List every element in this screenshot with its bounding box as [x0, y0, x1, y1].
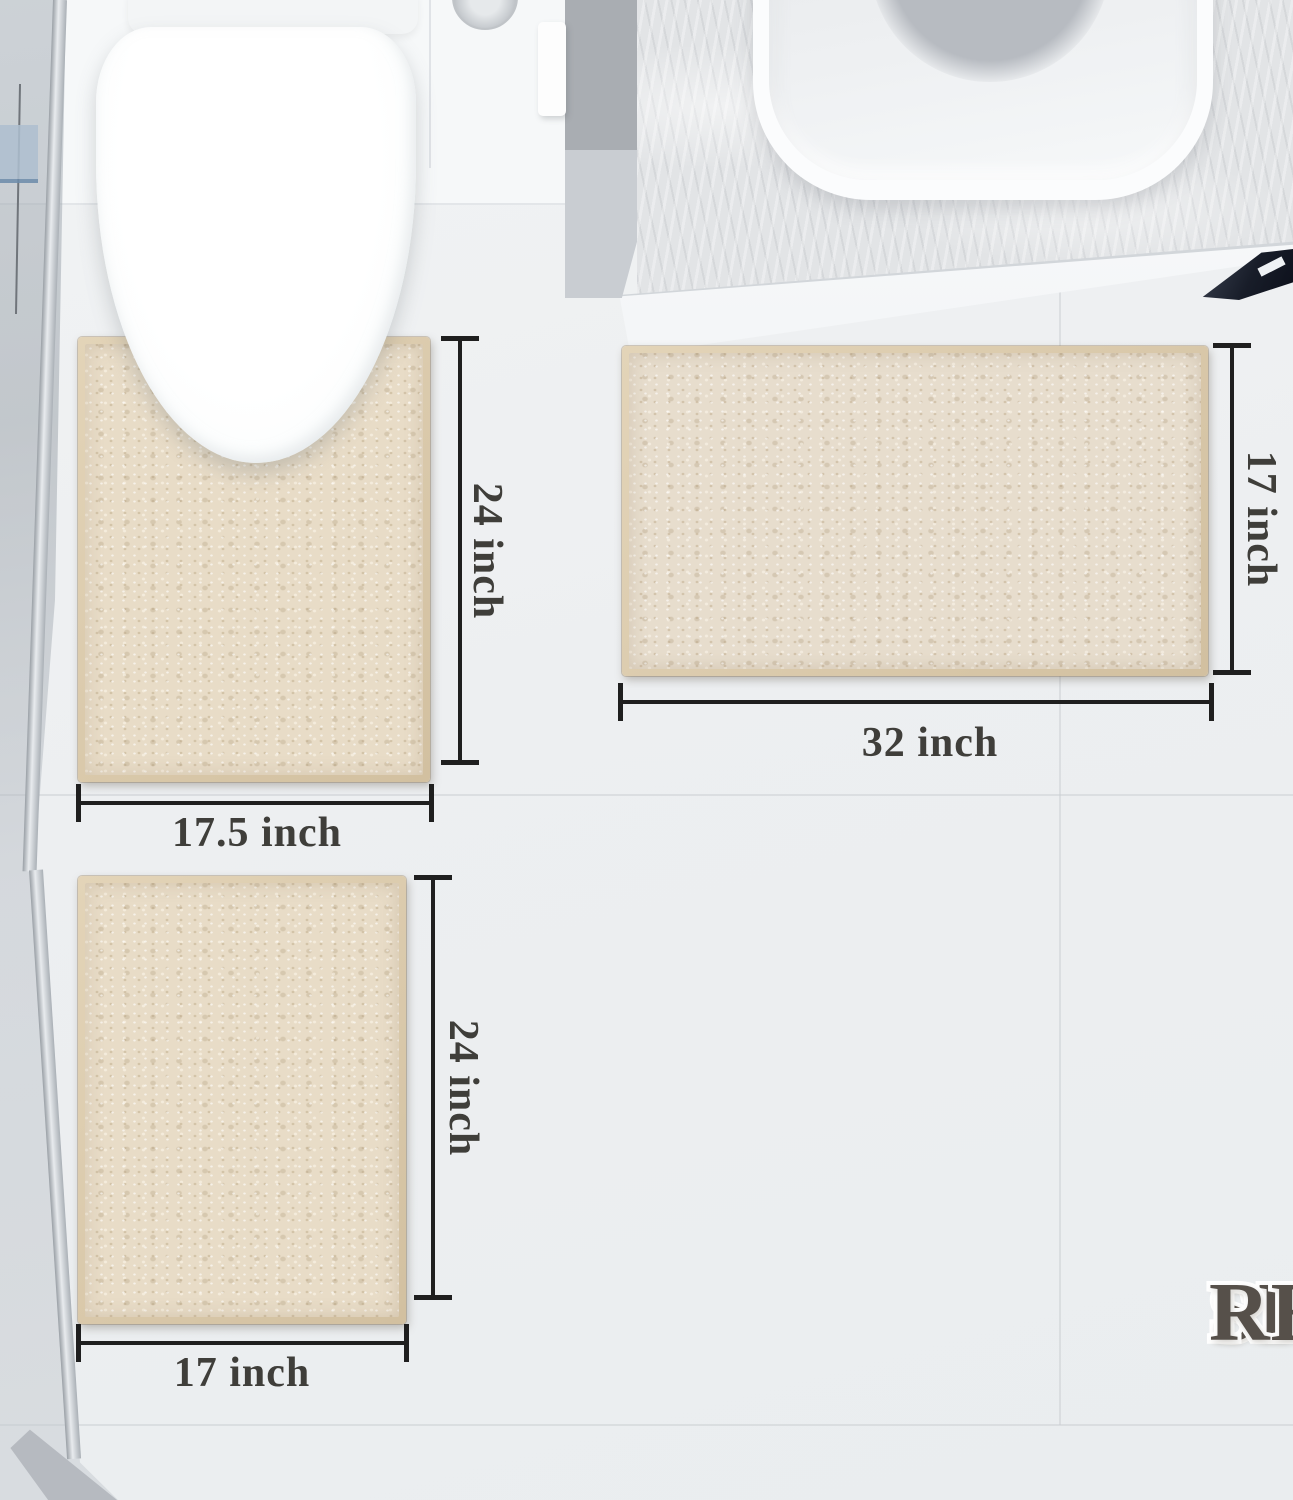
- tile-grout-line: [429, 0, 431, 168]
- dimension-label-contour-height: 24 inch: [464, 391, 508, 711]
- mat-fabric: [629, 353, 1201, 669]
- dimension-line-small-height: [431, 877, 435, 1298]
- dimension-label-small-width: 17 inch: [92, 1352, 392, 1396]
- dimension-label-contour-width: 17.5 inch: [97, 812, 417, 856]
- hand-towel: [538, 22, 566, 116]
- sink-basin: [753, 0, 1213, 200]
- tile-grout-line: [0, 1424, 1293, 1426]
- dimension-line-runner-width: [620, 700, 1212, 704]
- dimension-label-runner-width: 32 inch: [780, 722, 1080, 766]
- tile-grout-line: [0, 794, 1293, 796]
- runner-mat: [622, 346, 1208, 676]
- wall-cabinet: [565, 0, 637, 150]
- dimension-line-runner-height: [1230, 345, 1234, 673]
- glass-reflection: [0, 125, 38, 183]
- mat-fabric: [85, 883, 399, 1317]
- dimension-line-contour-width: [78, 801, 432, 805]
- wall-cabinet-base: [565, 150, 637, 298]
- product-size-reference-image: 24 inch 17.5 inch 17 inch 32 inch 24 inc…: [0, 0, 1293, 1500]
- shower-glass-panel: [0, 0, 130, 1500]
- dimension-label-small-height: 24 inch: [440, 928, 484, 1248]
- title-line-2: REFERENCE: [1209, 1262, 1293, 1364]
- dimension-label-runner-height: 17 inch: [1238, 379, 1282, 659]
- dimension-line-small-width: [78, 1341, 407, 1345]
- dimension-line-contour-height: [458, 338, 462, 763]
